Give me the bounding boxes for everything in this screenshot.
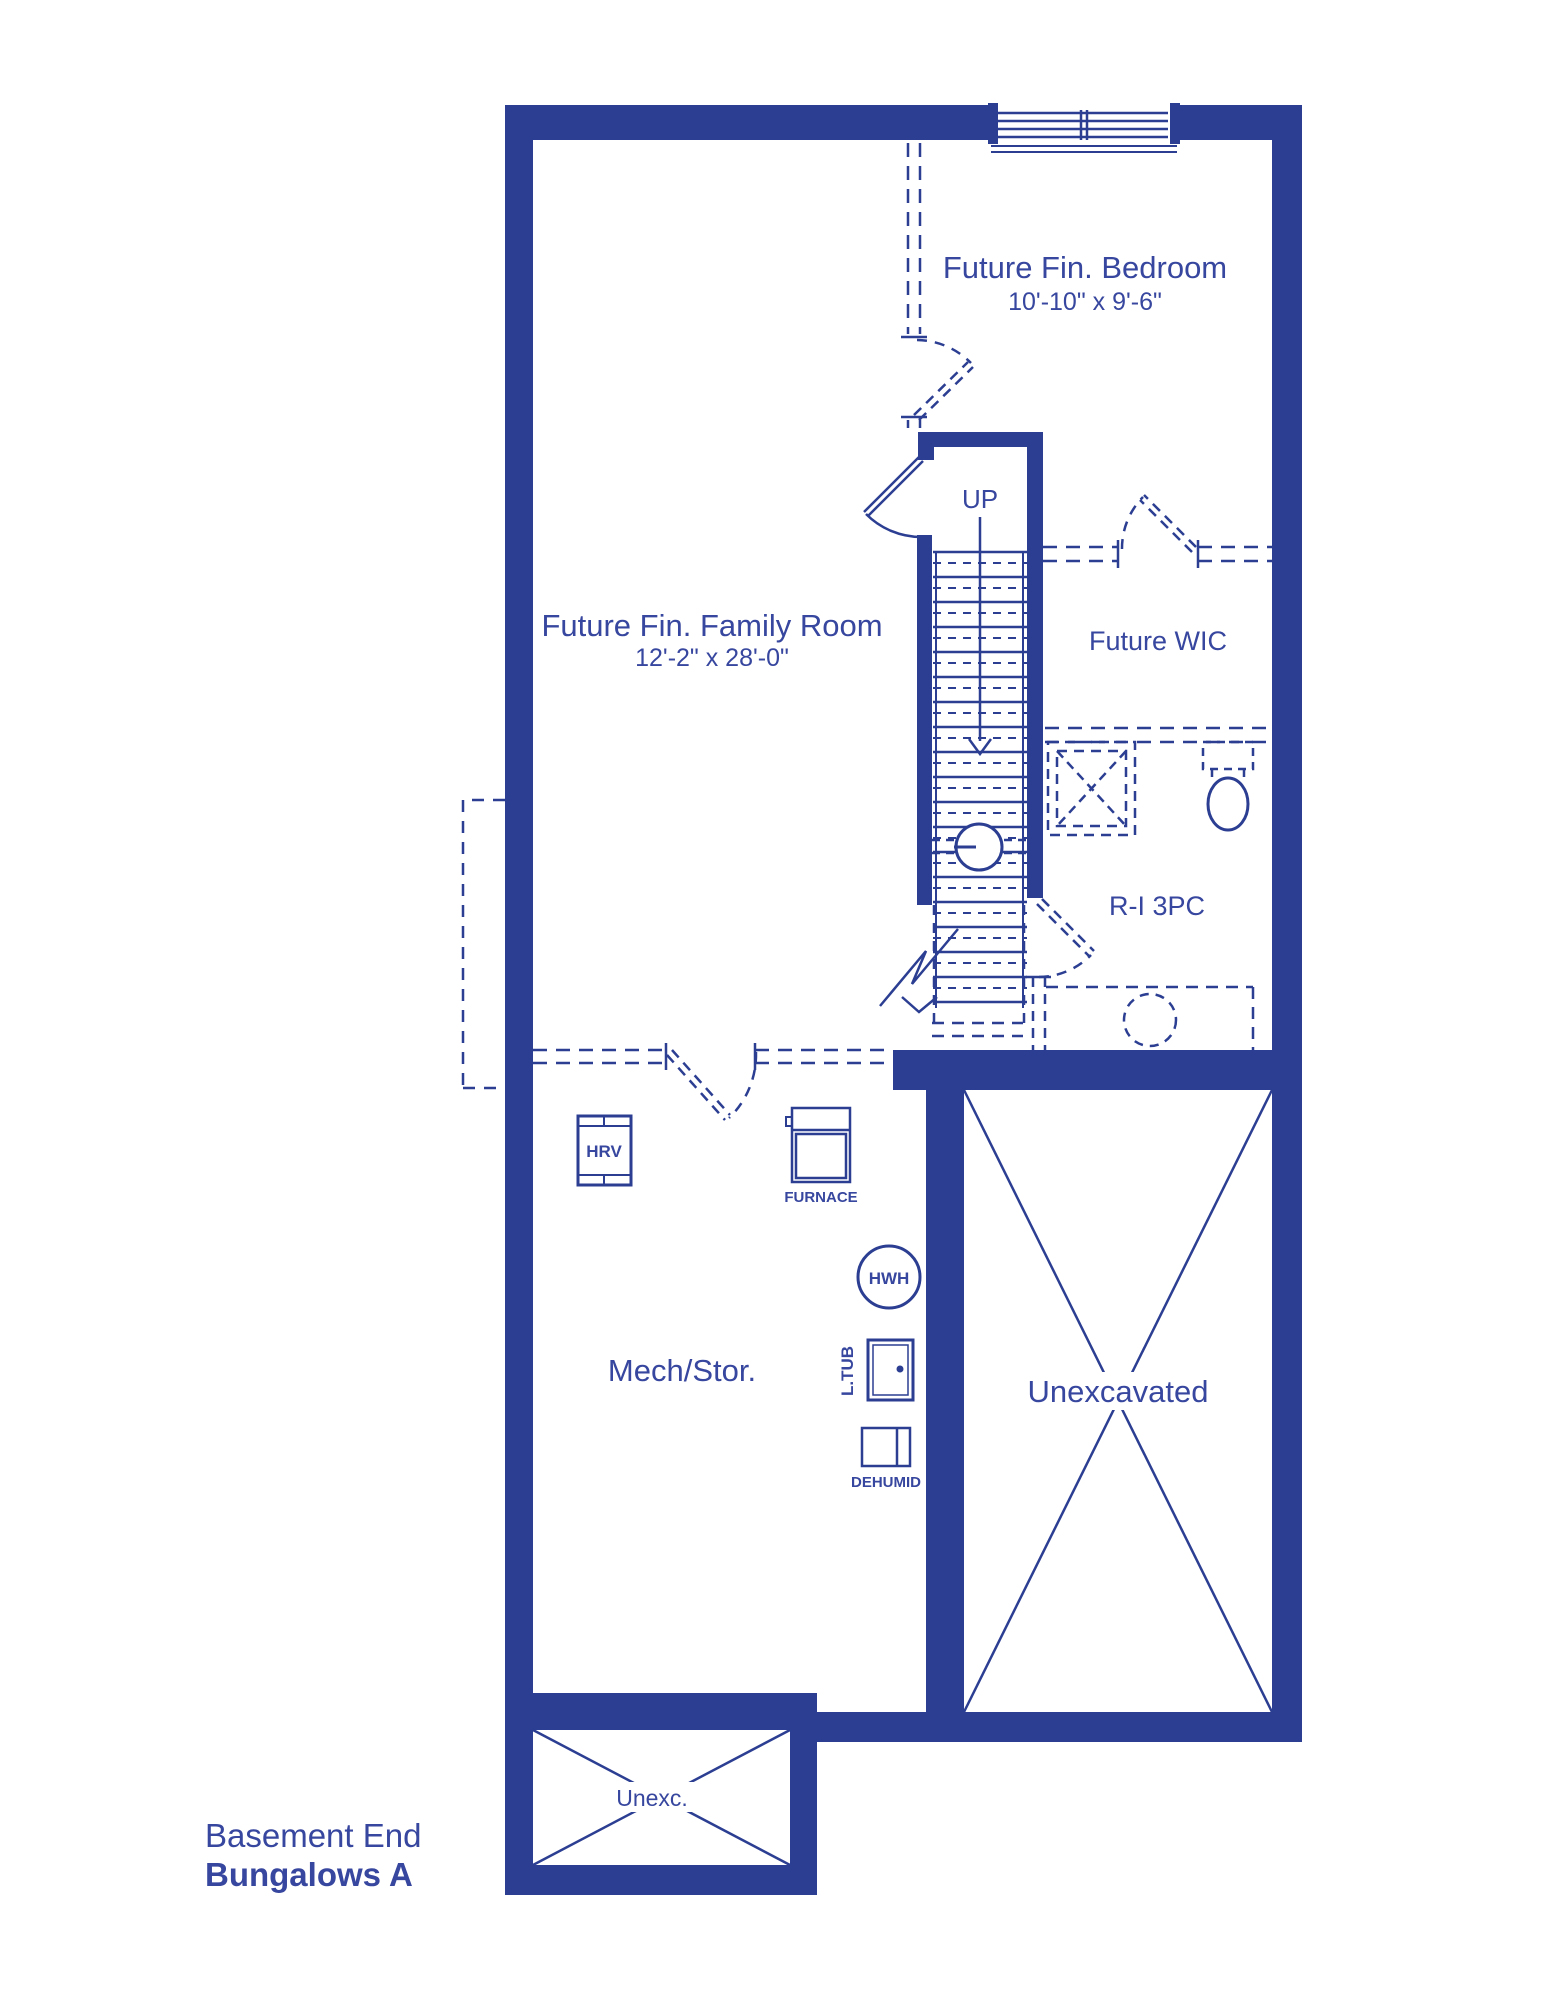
plan-title-line1: Basement End <box>205 1817 421 1854</box>
stair-door <box>864 457 923 537</box>
toilet <box>1203 742 1253 830</box>
bedroom-future-wall <box>901 143 973 432</box>
unexcavated-small-label: Unexc. <box>616 1785 688 1811</box>
exterior-walls <box>505 105 1302 1895</box>
staircase <box>880 517 1027 1012</box>
left-bumpout <box>463 800 505 1088</box>
unexcavated-label: Unexcavated <box>1028 1374 1209 1409</box>
shower <box>1048 742 1135 835</box>
wic-future-wall <box>1043 495 1272 568</box>
laundry-tub <box>868 1340 913 1400</box>
furnace-label: FURNACE <box>784 1189 857 1206</box>
bedroom-window <box>988 103 1180 152</box>
plan-title-line2: Bungalows A <box>205 1856 413 1893</box>
bathroom-future-walls <box>1026 728 1272 1050</box>
laundry-tub-label: L.TUB <box>838 1346 857 1396</box>
hrv-label: HRV <box>586 1142 622 1161</box>
up-label: UP <box>962 484 998 514</box>
bedroom-label: Future Fin. Bedroom <box>943 250 1227 285</box>
wic-label: Future WIC <box>1089 626 1227 656</box>
floor-plan-svg: Future Fin. Bedroom 10'-10" x 9'-6" Futu… <box>0 0 1546 2000</box>
family-room-label: Future Fin. Family Room <box>541 608 882 643</box>
floor-plan-page: Future Fin. Bedroom 10'-10" x 9'-6" Futu… <box>0 0 1546 2000</box>
column-symbol <box>954 824 1002 870</box>
vanity-sink <box>1046 987 1253 1050</box>
bathroom-label: R-I 3PC <box>1109 891 1205 921</box>
stair-break-line <box>880 929 958 1012</box>
bedroom-dims: 10'-10" x 9'-6" <box>1008 288 1162 316</box>
hwh-label: HWH <box>869 1269 910 1288</box>
dehumidifier-unit <box>862 1428 910 1466</box>
furnace-unit <box>786 1108 850 1182</box>
family-room-dims: 12'-2" x 28'-0" <box>635 644 789 672</box>
mech-storage-label: Mech/Stor. <box>608 1353 756 1388</box>
dehumidifier-label: DEHUMID <box>851 1474 921 1491</box>
